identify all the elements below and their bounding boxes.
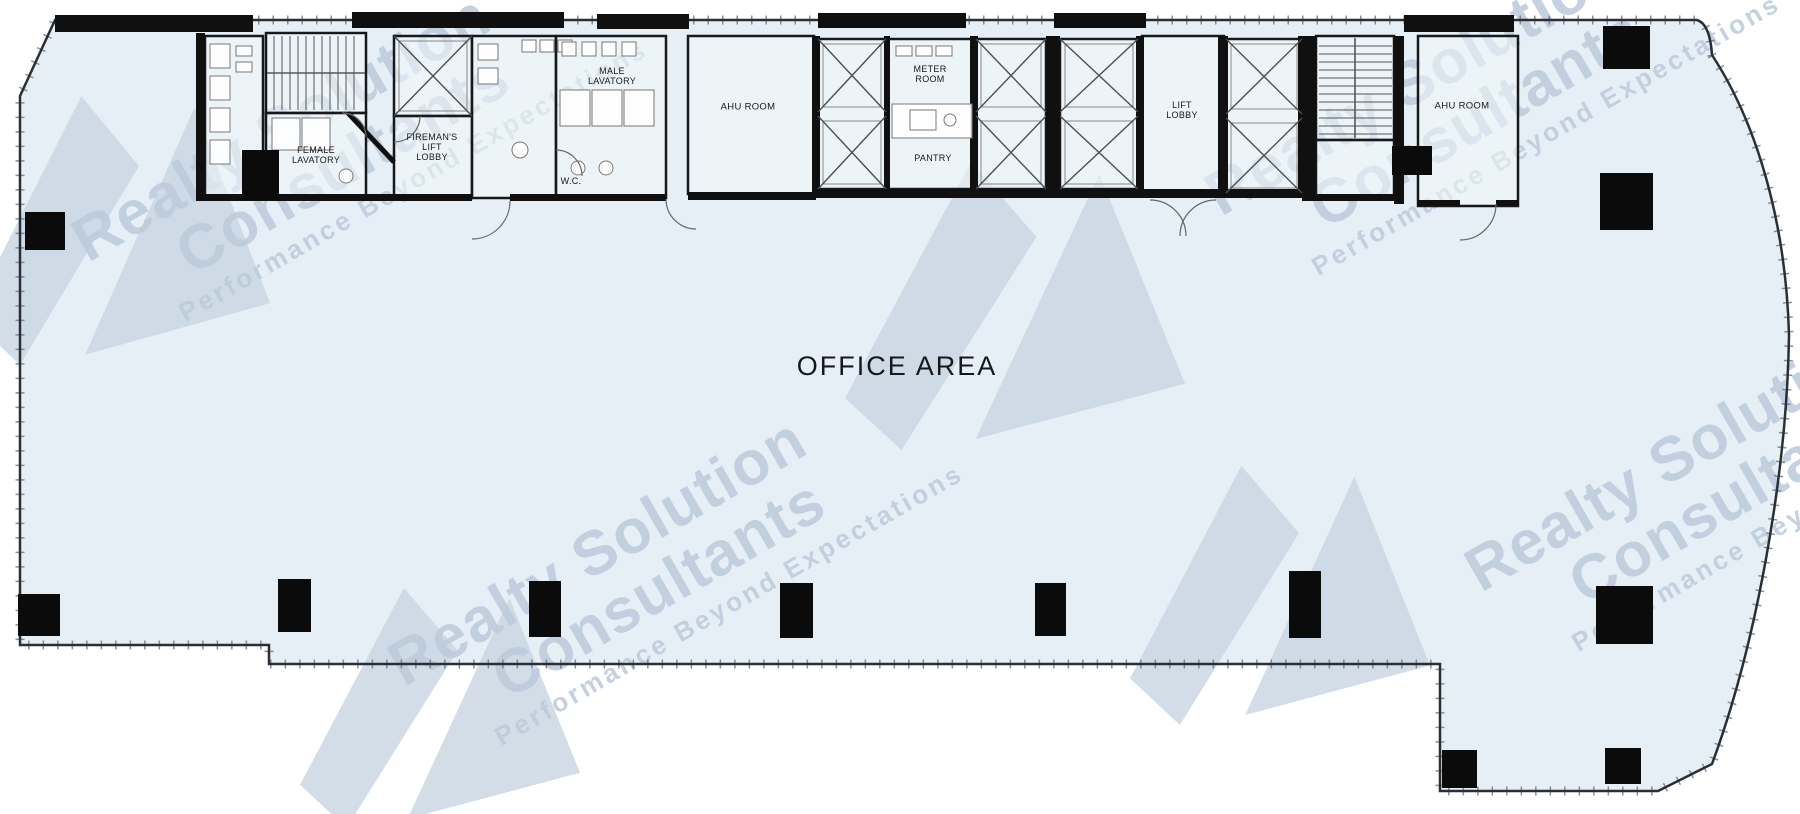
label-wc: W.C. — [561, 176, 582, 186]
label-firemans-lift-lobby: FIREMAN'S LIFT LOBBY — [407, 132, 458, 162]
labels-layer: OFFICE AREAFEMALE LAVATORYFIREMAN'S LIFT… — [0, 0, 1800, 814]
label-meter-room: METER ROOM — [914, 64, 947, 84]
label-female-lavatory: FEMALE LAVATORY — [292, 145, 340, 165]
floor-plan: Realty SolutionConsultantsPerformance Be… — [0, 0, 1800, 814]
label-pantry: PANTRY — [914, 153, 951, 163]
label-male-lavatory: MALE LAVATORY — [588, 66, 636, 86]
label-office-area: OFFICE AREA — [797, 351, 998, 381]
label-ahu-room-right: AHU ROOM — [1435, 102, 1490, 113]
label-ahu-room-left: AHU ROOM — [721, 103, 776, 114]
label-lift-lobby: LIFT LOBBY — [1166, 100, 1198, 120]
